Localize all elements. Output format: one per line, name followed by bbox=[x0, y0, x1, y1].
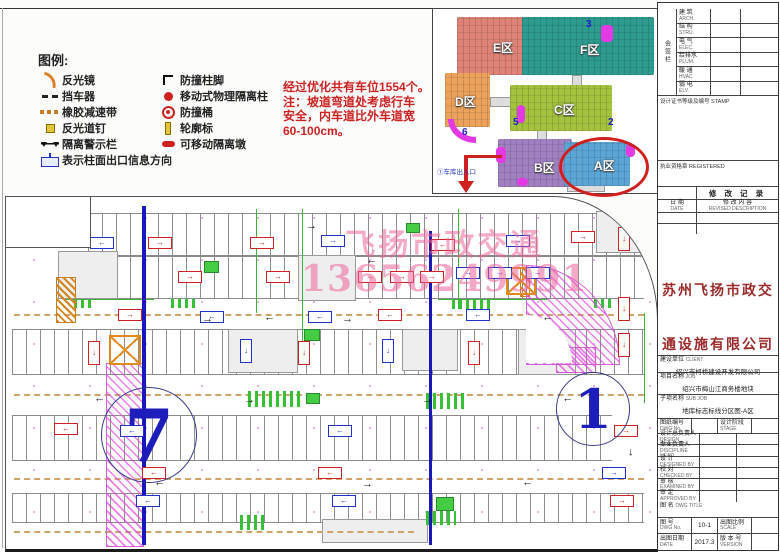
legend-item: 表示柱面出口信息方向 bbox=[38, 152, 172, 168]
signoff-blank bbox=[711, 53, 741, 67]
signoff-blank bbox=[711, 82, 741, 96]
drawing-sheet: { "legend":{ "title":"图例:", "left":[ {"i… bbox=[0, 0, 780, 551]
direction-sign: ← bbox=[318, 467, 342, 479]
lane-center-dash bbox=[14, 531, 414, 533]
legend-label: 移动式物理隔离柱 bbox=[180, 88, 268, 104]
tb-value bbox=[752, 518, 778, 533]
subjob-row: 子项名称 SUB JOB 地库标志标线分区图-A区 bbox=[658, 395, 778, 419]
legend-label: 反光镜 bbox=[62, 72, 95, 88]
speedbump-glyph bbox=[40, 110, 60, 114]
direction-sign: ← bbox=[308, 311, 332, 323]
discipline-cell: 给排水PLUM. bbox=[677, 53, 711, 67]
direction-sign: ← bbox=[328, 425, 352, 437]
discipline-cell: 弱 电ELV. bbox=[677, 82, 711, 96]
discipline-cell: 暖 通HVAC bbox=[677, 67, 711, 81]
speed-bump bbox=[56, 277, 76, 323]
client-row: 建设单位 CLIENT 绍兴市柯桥建设开发有限公司 bbox=[658, 356, 778, 373]
signoff-row: 结 构STRU. bbox=[677, 24, 778, 39]
legend-label: 可移动隔离墩 bbox=[180, 136, 246, 152]
zone-label-f: F区 bbox=[580, 41, 599, 58]
green-marking bbox=[436, 497, 454, 511]
direction-sign: → bbox=[610, 495, 634, 507]
ramp-blob bbox=[517, 178, 528, 186]
direction-sign: → bbox=[148, 237, 172, 249]
legend-row: 橡胶减速带防撞桶 bbox=[38, 104, 276, 120]
tb-en: DATE bbox=[660, 543, 691, 548]
direction-sign: ← bbox=[378, 309, 402, 321]
job-row: 项目名称 JOB 绍兴市梅山江商务楼地块 bbox=[658, 373, 778, 395]
watermark: 飞扬市政交通 13656249991 bbox=[301, 231, 588, 297]
crossed-box bbox=[109, 335, 141, 365]
person-blank bbox=[700, 479, 737, 489]
roadstud-icon bbox=[38, 124, 62, 133]
direction-sign: ← bbox=[90, 237, 114, 249]
crosswalk bbox=[240, 515, 266, 530]
stopper-glyph bbox=[42, 95, 58, 98]
discipline-en: STRU. bbox=[679, 31, 710, 36]
lane-arrow: → bbox=[202, 314, 213, 325]
plan-corner-notch bbox=[5, 196, 91, 248]
direction-sign: ← bbox=[54, 423, 78, 435]
direction-sign: ↓ bbox=[298, 341, 310, 365]
person-row: 审 定APPROVED BY bbox=[658, 491, 778, 502]
direction-sign: ↓ bbox=[618, 227, 630, 251]
person-rows: 设计总负责人DESIGN DIRECTOR专业负责人DISCIPLINE HEA… bbox=[658, 434, 778, 502]
zone-label-e: E区 bbox=[493, 39, 513, 56]
green-marking bbox=[304, 329, 320, 341]
exit-sign-glyph bbox=[41, 157, 59, 167]
company-name: 苏州飞扬市政交 通设施有限公司 bbox=[658, 234, 778, 356]
isopillar-glyph bbox=[164, 92, 173, 101]
signoff-row: 建 筑ARCH. bbox=[677, 9, 778, 24]
legend-item: 橡胶减速带 bbox=[38, 104, 156, 120]
direction-sign: ↓ bbox=[240, 339, 252, 363]
legend-label: 隔离警示栏 bbox=[62, 136, 117, 152]
direction-sign: → bbox=[178, 271, 202, 283]
person-label: 审 定APPROVED BY bbox=[658, 491, 700, 502]
signoff-blank bbox=[711, 9, 741, 23]
tb-en: SCALE bbox=[720, 526, 751, 531]
stopper-icon bbox=[38, 95, 62, 98]
direction-sign: ↓ bbox=[618, 333, 630, 357]
legend-item: 轮廓标 bbox=[156, 120, 213, 136]
legend-item: 移动式物理隔离柱 bbox=[156, 88, 268, 104]
zone-c: C区 bbox=[510, 85, 612, 131]
direction-sign: ↓ bbox=[88, 341, 100, 365]
legend-grid: 反光镜防撞柱脚挡车器移动式物理隔离柱橡胶减速带防撞桶反光道钉轮廓标隔离警示栏可移… bbox=[38, 72, 276, 168]
legend-label: 橡胶减速带 bbox=[62, 104, 117, 120]
isopier-glyph bbox=[162, 141, 175, 147]
parking-floor-plan: 7 1 飞扬市政交通 13656249991 ←→→→←→→→→→→→→→→→←… bbox=[5, 196, 658, 552]
legend-title: 图例: bbox=[38, 50, 276, 69]
direction-sign: ↓ bbox=[468, 341, 480, 365]
legend-row: 挡车器移动式物理隔离柱 bbox=[38, 88, 276, 104]
discipline-en: HVAC bbox=[679, 75, 710, 80]
ramp-blob bbox=[601, 25, 613, 42]
legend-row: 隔离警示栏可移动隔离墩 bbox=[38, 136, 276, 152]
keymap-number-2: 2 bbox=[608, 117, 614, 128]
entrance-label: ①车库出入口 bbox=[437, 166, 476, 176]
zone-keymap: ①车库出入口 E区F区D区C区B区A区3526 bbox=[432, 8, 660, 194]
stamp-box: 设计证书等级及编号 STAMP bbox=[658, 96, 778, 161]
person-blank bbox=[700, 468, 737, 478]
lane-arrow: → bbox=[542, 314, 553, 325]
discipline-en: PLUM. bbox=[679, 60, 710, 65]
watermark-phone: 13656249991 bbox=[301, 261, 588, 297]
zone-label-d: D区 bbox=[455, 93, 476, 110]
legend-item: 反光镜 bbox=[38, 72, 156, 88]
green-marking bbox=[306, 393, 320, 404]
zone-circle-1: 1 bbox=[556, 372, 630, 446]
legend-row: 表示柱面出口信息方向 bbox=[38, 152, 276, 168]
tb-value: 10-1 bbox=[692, 518, 718, 533]
bucket-glyph bbox=[162, 106, 175, 119]
legend-item: 防撞柱脚 bbox=[156, 72, 224, 88]
legend-label: 防撞柱脚 bbox=[180, 72, 224, 88]
lane-arrow: → bbox=[362, 479, 373, 490]
keymap-number-5: 5 bbox=[513, 117, 519, 128]
lane-arrow: → bbox=[342, 314, 353, 325]
date-row: 出图日期DATE2017.3版 本 号VERSION bbox=[658, 534, 778, 550]
discipline-cell: 建 筑ARCH. bbox=[677, 9, 711, 23]
legend-label: 反光道钉 bbox=[62, 120, 106, 136]
legend-item: 反光道钉 bbox=[38, 120, 156, 136]
crosswalk bbox=[171, 299, 199, 308]
crosswalk bbox=[248, 391, 300, 407]
green-guide-line bbox=[256, 209, 257, 313]
legend-row: 反光道钉轮廓标 bbox=[38, 120, 276, 136]
legend-item: 可移动隔离墩 bbox=[156, 136, 246, 152]
legend-label: 表示柱面出口信息方向 bbox=[62, 152, 172, 168]
scale-row: 图 号DWG No.10-1出图比例SCALE bbox=[658, 518, 778, 534]
green-marking bbox=[204, 261, 219, 273]
tb-label: 图 号DWG No. bbox=[658, 518, 692, 533]
legend: 图例: 反光镜防撞柱脚挡车器移动式物理隔离柱橡胶减速带防撞桶反光道钉轮廓标隔离警… bbox=[38, 50, 276, 168]
exitsign-icon bbox=[38, 153, 62, 167]
lane-arrow: → bbox=[626, 447, 637, 458]
sheet-left-border bbox=[2, 8, 3, 548]
keymap-number-3: 3 bbox=[586, 19, 592, 30]
direction-sign: → bbox=[250, 237, 274, 249]
columnfoot-glyph bbox=[163, 75, 173, 85]
direction-sign: ← bbox=[466, 309, 490, 321]
person-label: 设 计DESIGNED BY bbox=[658, 457, 700, 467]
discipline-en: ARCH. bbox=[679, 17, 710, 22]
discipline-cell: 结 构STRU. bbox=[677, 24, 711, 38]
watermark-text: 飞扬市政交通 bbox=[301, 231, 588, 261]
legend-label: 防撞桶 bbox=[180, 104, 213, 120]
direction-sign: → bbox=[118, 309, 142, 321]
direction-sign: ↓ bbox=[382, 339, 394, 363]
contour-glyph bbox=[165, 122, 171, 135]
revision-empty-rows bbox=[658, 213, 778, 234]
lane-arrow: → bbox=[94, 395, 105, 406]
green-marking bbox=[640, 209, 652, 219]
discipline-en: ELEC. bbox=[679, 46, 710, 51]
zone-circle-7: 7 bbox=[101, 387, 197, 483]
revision-header-row: 日 期 DATE 修 改 内 容 REVISED DESCRIPTION bbox=[658, 200, 778, 213]
tb-label: 出图日期DATE bbox=[658, 534, 692, 550]
legend-row: 反光镜防撞柱脚 bbox=[38, 72, 276, 88]
contour-icon bbox=[156, 122, 180, 135]
direction-sign: ↓ bbox=[618, 297, 630, 321]
signoff-side-label: 会签栏 bbox=[658, 9, 677, 95]
warnrail-glyph bbox=[41, 141, 59, 148]
signoff-table: 会签栏 建 筑ARCH.结 构STRU.电 气ELEC.给排水PLUM.暖 通H… bbox=[658, 9, 778, 96]
isopillar-icon bbox=[156, 92, 180, 101]
person-row: 审 核EXAMINED BY bbox=[658, 479, 778, 490]
company-line1: 苏州飞扬市政交 bbox=[658, 280, 778, 300]
green-guide-line bbox=[644, 313, 645, 403]
revision-title-row: 修 改 记 录 bbox=[658, 187, 778, 200]
columnfoot-icon bbox=[156, 75, 180, 85]
mirror-glyph bbox=[42, 72, 59, 89]
signoff-row: 电 气ELEC. bbox=[677, 38, 778, 53]
entrance-arrow-hbar bbox=[466, 155, 502, 158]
zone-label-b: B区 bbox=[534, 159, 555, 176]
person-blank bbox=[700, 457, 737, 467]
lane-arrow: → bbox=[244, 395, 255, 406]
tb-value bbox=[752, 534, 778, 550]
person-label: 校 对CHECKED BY bbox=[658, 468, 700, 478]
speedbump-icon bbox=[38, 110, 62, 114]
signoff-row: 弱 电ELV. bbox=[677, 82, 778, 96]
tb-en: DWG No. bbox=[660, 526, 691, 531]
isopier-icon bbox=[156, 141, 180, 147]
person-label: 审 核EXAMINED BY bbox=[658, 479, 700, 489]
green-guide-line bbox=[64, 299, 154, 300]
company-line2: 通设施有限公司 bbox=[658, 334, 778, 354]
signoff-blank bbox=[711, 67, 741, 81]
direction-sign: ← bbox=[136, 495, 160, 507]
signoff-row: 暖 通HVAC bbox=[677, 67, 778, 82]
building-core bbox=[228, 329, 298, 373]
direction-sign: ← bbox=[332, 495, 356, 507]
tb-value: 2017.3 bbox=[692, 534, 718, 550]
lane-arrow: → bbox=[422, 395, 433, 406]
legend-item: 隔离警示栏 bbox=[38, 136, 156, 152]
signoff-blank bbox=[741, 38, 778, 52]
discipline-cell: 电 气ELEC. bbox=[677, 38, 711, 52]
legend-item: 挡车器 bbox=[38, 88, 156, 104]
signoff-row: 给排水PLUM. bbox=[677, 53, 778, 68]
signoff-blank bbox=[741, 24, 778, 38]
warnrail-icon bbox=[38, 141, 62, 148]
zone-a-highlight-ellipse bbox=[559, 137, 649, 197]
direction-sign: → bbox=[266, 271, 290, 283]
signoff-blank bbox=[741, 9, 778, 23]
tb-en: VERSION bbox=[720, 543, 751, 548]
person-blank bbox=[700, 445, 737, 455]
roadstud-glyph bbox=[46, 124, 55, 133]
tb-label: 出图比例SCALE bbox=[718, 518, 752, 533]
registered-box: 执业资格章 REGISTERED bbox=[658, 161, 778, 187]
signoff-blank bbox=[741, 53, 778, 67]
tb-label: 版 本 号VERSION bbox=[718, 534, 752, 550]
lane-arrow: → bbox=[264, 314, 275, 325]
keymap-number-6: 6 bbox=[462, 127, 468, 138]
person-label: 专业负责人DISCIPLINE HEAD bbox=[658, 445, 700, 455]
entrance-arrow-head bbox=[458, 181, 474, 193]
legend-label: 挡车器 bbox=[62, 88, 95, 104]
dwg-title-row: 图 名 DWG TITLE bbox=[658, 502, 778, 518]
legend-label: 轮廓标 bbox=[180, 120, 213, 136]
signoff-blank bbox=[711, 24, 741, 38]
discipline-en: ELV. bbox=[679, 89, 710, 94]
signoff-blank bbox=[741, 82, 778, 96]
signoff-blank bbox=[741, 67, 778, 81]
person-blank bbox=[700, 434, 737, 444]
zone-label-c: C区 bbox=[554, 101, 575, 118]
legend-item: 防撞桶 bbox=[156, 104, 213, 120]
title-block: 会签栏 建 筑ARCH.结 构STRU.电 气ELEC.给排水PLUM.暖 通H… bbox=[657, 2, 779, 551]
person-blank bbox=[700, 491, 737, 502]
crosswalk bbox=[74, 299, 92, 308]
lane-arrow: → bbox=[522, 479, 533, 490]
direction-sign: → bbox=[602, 467, 626, 479]
signoff-blank bbox=[711, 38, 741, 52]
bucket-icon bbox=[156, 106, 180, 119]
mirror-icon bbox=[38, 73, 62, 87]
